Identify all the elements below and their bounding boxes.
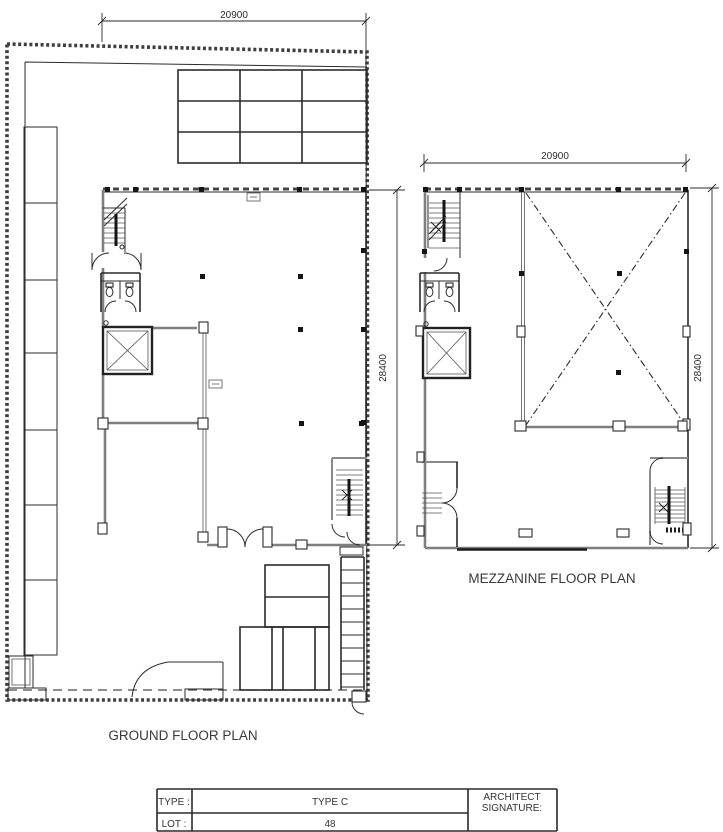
wc-fixture-icon [126,283,133,287]
floor-plan-drawing: 20900 28400 [0,0,723,832]
architectural-drawing-sheet: 20900 28400 [0,0,723,832]
mezzanine-dim-top-label: 20900 [541,151,569,162]
type-value: TYPE C [312,797,348,808]
ground-dim-top-label: 20900 [220,10,248,21]
mezzanine-plan-title: MEZZANINE FLOOR PLAN [468,571,635,586]
architect-label-line2: SIGNATURE: [482,803,542,814]
sheet-background [0,0,723,832]
type-label: TYPE : [158,797,190,808]
wc-fixture-icon [426,283,433,287]
mezzanine-dim-side-label: 28400 [693,354,704,382]
ground-dim-side-label: 28400 [378,354,389,382]
ground-plan-title: GROUND FLOOR PLAN [108,728,257,743]
wc-fixture-icon [106,283,113,287]
wc-fixture-icon [446,283,453,287]
lot-value: 48 [324,819,336,830]
architect-label-line1: ARCHITECT [483,792,540,803]
lot-label: LOT : [162,819,187,830]
